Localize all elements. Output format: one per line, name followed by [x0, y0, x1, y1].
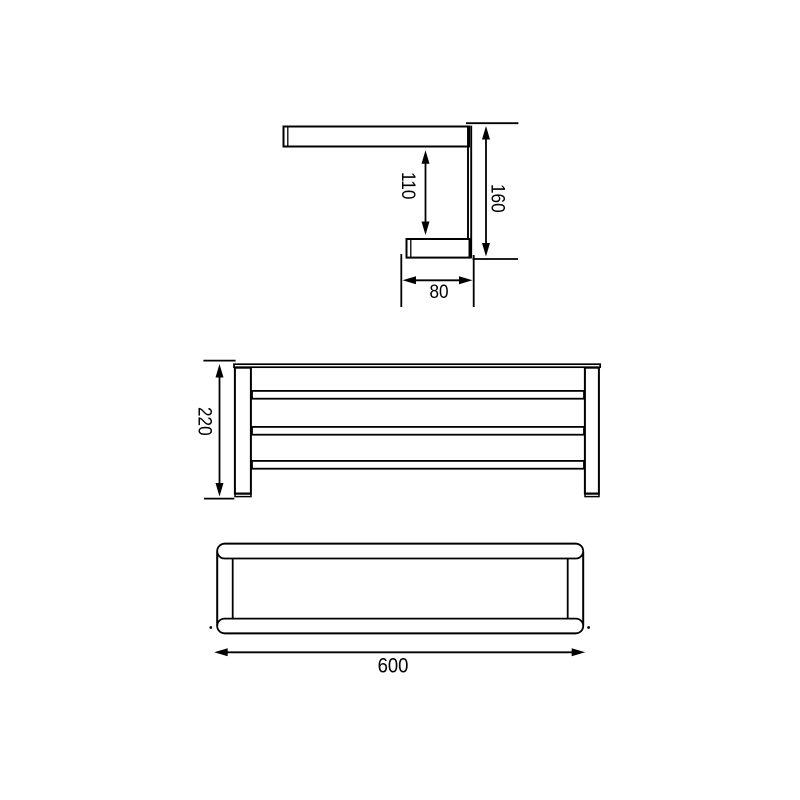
svg-text:160: 160: [487, 184, 509, 213]
svg-text:220: 220: [194, 407, 216, 436]
svg-text:600: 600: [378, 654, 409, 677]
svg-text:80: 80: [429, 280, 448, 302]
svg-text:110: 110: [398, 172, 420, 199]
